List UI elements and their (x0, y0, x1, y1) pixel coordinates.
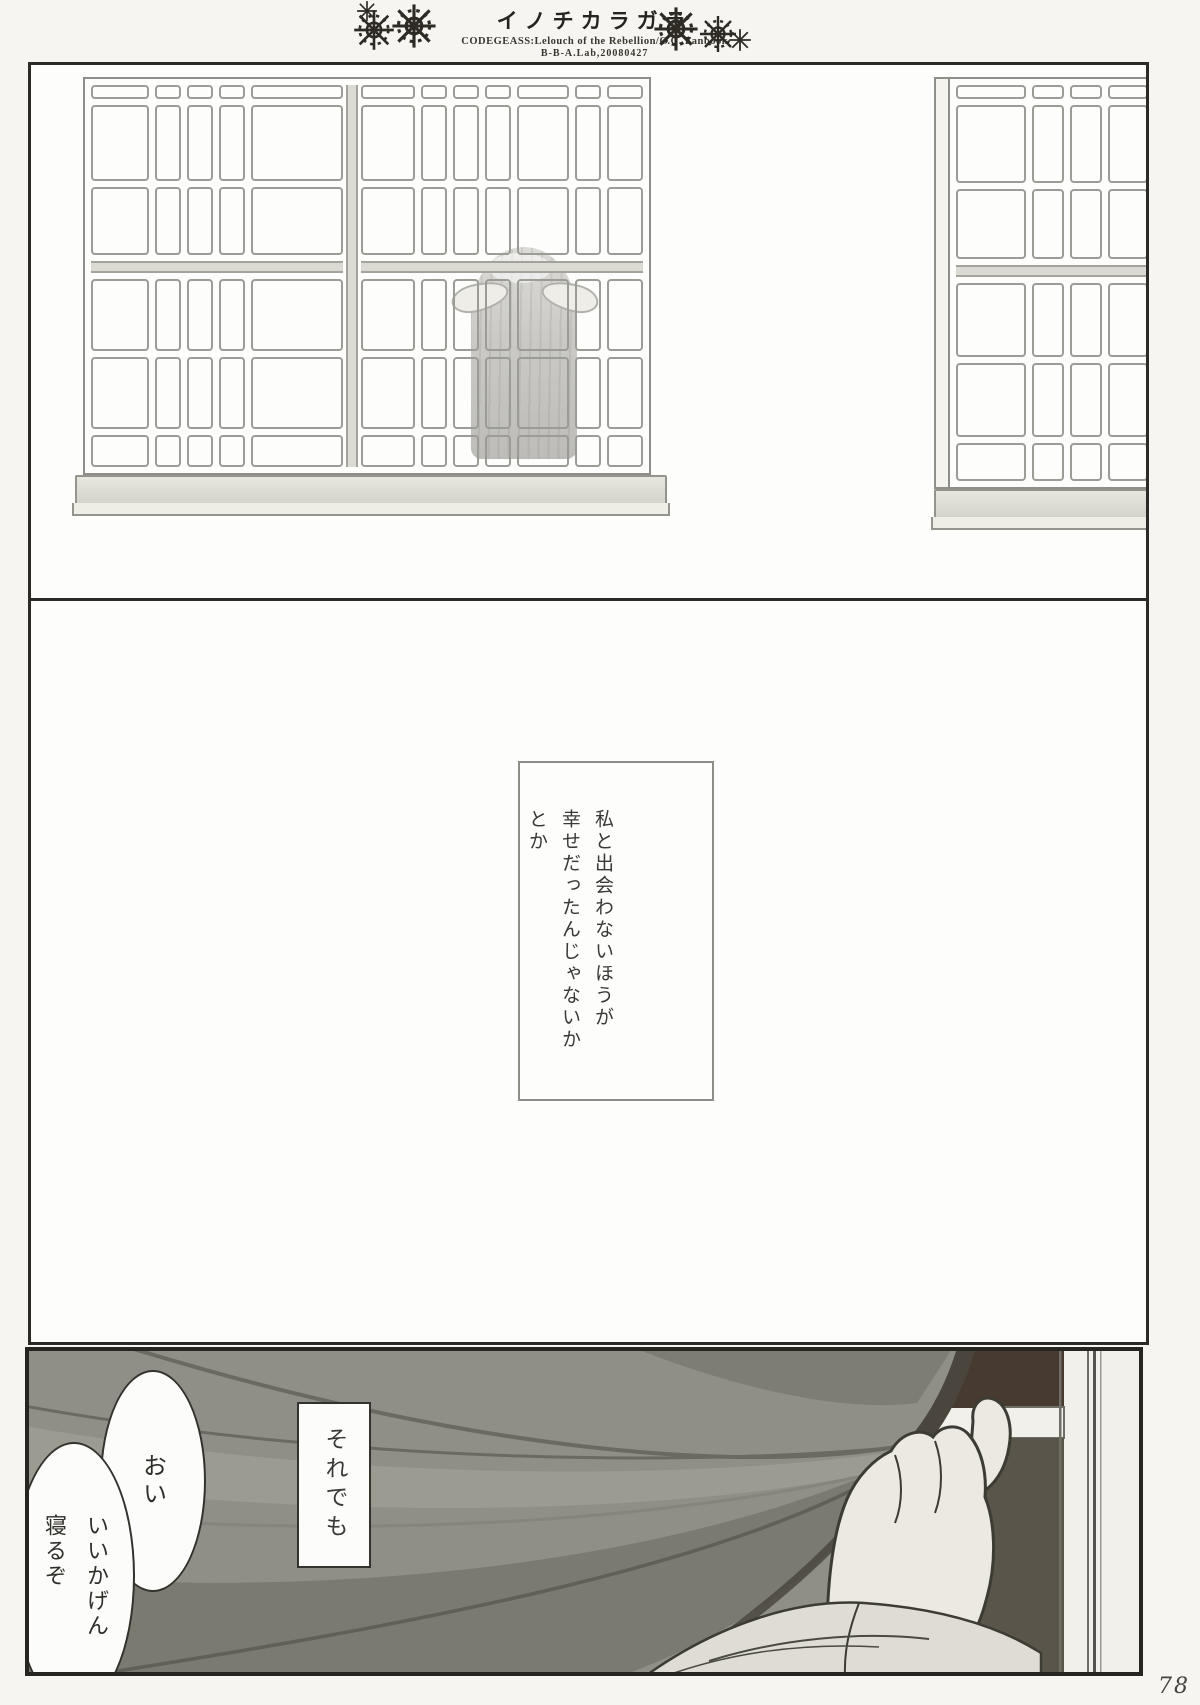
window-pane (956, 189, 1026, 259)
window-pane (1070, 443, 1102, 481)
window-pane (187, 105, 213, 181)
snowflake-ornament-icon (390, 2, 438, 50)
window-pane (575, 187, 601, 255)
window-pane (517, 187, 569, 255)
window-grid (956, 85, 1148, 481)
window-pane (1032, 189, 1064, 259)
speech-text: いいかげん 寝るぞ (32, 1514, 116, 1639)
window-pane (251, 357, 343, 429)
window-pane (361, 85, 415, 99)
window-pane (607, 357, 643, 429)
window-pane (187, 435, 213, 467)
window-pane (251, 435, 343, 467)
window-pane (187, 279, 213, 351)
panel-curtain-scene: それでも おい いいかげん 寝るぞ (25, 1347, 1143, 1676)
window-pane (485, 357, 511, 429)
manga-page: イノチカラガラ CODEGEASS:Lelouch of the Rebelli… (0, 0, 1200, 1705)
narration-text: それでも (317, 1427, 351, 1543)
window-pane (91, 435, 149, 467)
window-pane (187, 85, 213, 99)
window-pane (219, 279, 245, 351)
monologue-line: 幸せだったんじゃないか (553, 809, 586, 1099)
window-pane (421, 187, 447, 255)
window-pane (1108, 443, 1148, 481)
window-pane (607, 435, 643, 467)
window-rail (361, 261, 643, 273)
speech-text: おい (136, 1453, 171, 1509)
window-pane (361, 105, 415, 181)
window-pane (219, 187, 245, 255)
window-pane (421, 279, 447, 351)
window-pane (485, 279, 511, 351)
window-pane (485, 105, 511, 181)
window-pane (575, 435, 601, 467)
window-pane (956, 283, 1026, 357)
window-pane (453, 279, 479, 351)
window-pane (575, 105, 601, 181)
left-lattice-window (83, 77, 651, 475)
window-pane (219, 435, 245, 467)
window-pane (1108, 189, 1148, 259)
window-pane (155, 357, 181, 429)
monologue-line: とか (520, 809, 553, 1099)
window-pane (1108, 85, 1148, 99)
window-pane (485, 187, 511, 255)
page-header: イノチカラガラ CODEGEASS:Lelouch of the Rebelli… (0, 0, 1200, 60)
window-pane (187, 357, 213, 429)
window-pane (361, 279, 415, 351)
window-pane (956, 363, 1026, 437)
right-lattice-window (948, 77, 1149, 489)
window-pane (575, 279, 601, 351)
window-pane (517, 105, 569, 181)
window-pane (155, 435, 181, 467)
window-pane (575, 85, 601, 99)
window-pane (607, 187, 643, 255)
window-pane (1032, 363, 1064, 437)
window-pane (361, 435, 415, 467)
window-pane (956, 85, 1026, 99)
window-pane (1032, 443, 1064, 481)
window-sill (934, 489, 1149, 519)
window-pane (91, 187, 149, 255)
window-pane (1108, 363, 1148, 437)
window-grid-right-half (361, 85, 643, 467)
monologue-text: 私と出会わないほうが 幸せだったんじゃないか とか (520, 809, 619, 1099)
window-pane (219, 357, 245, 429)
window-mullion (346, 85, 358, 467)
window-grid-left-half (91, 85, 343, 467)
window-pane (91, 357, 149, 429)
speech-line: いいかげん (74, 1514, 116, 1639)
window-pane (1070, 283, 1102, 357)
window-pane (155, 105, 181, 181)
monologue-line: 私と出会わないほうが (586, 809, 619, 1099)
window-rail (956, 265, 1148, 277)
window-pane (453, 435, 479, 467)
window-pane (421, 435, 447, 467)
window-pane (517, 435, 569, 467)
window-pane (91, 279, 149, 351)
window-pane (485, 85, 511, 99)
window-pane (956, 443, 1026, 481)
window-pane (1070, 189, 1102, 259)
window-pane (155, 85, 181, 99)
window-sill (75, 475, 667, 505)
window-pane (1108, 105, 1148, 183)
window-pane (1032, 85, 1064, 99)
window-pane (956, 105, 1026, 183)
window-pane (155, 187, 181, 255)
snowflake-ornament-icon (728, 28, 752, 52)
window-pane (1070, 363, 1102, 437)
window-pane (517, 85, 569, 99)
window-pane (219, 105, 245, 181)
window-pane (251, 279, 343, 351)
window-pane (361, 357, 415, 429)
narration-box: それでも (297, 1402, 371, 1568)
window-pane (517, 279, 569, 351)
window-pane (485, 435, 511, 467)
window-pane (91, 85, 149, 99)
window-pane (421, 105, 447, 181)
window-pane (453, 357, 479, 429)
window-pane (607, 85, 643, 99)
window-pane (91, 105, 149, 181)
window-pane (251, 105, 343, 181)
window-pane (453, 187, 479, 255)
snowflake-ornament-icon (652, 5, 700, 53)
window-pane (575, 357, 601, 429)
window-pane (155, 279, 181, 351)
window-pane (421, 357, 447, 429)
speech-line: 寝るぞ (32, 1514, 74, 1639)
window-grid (91, 85, 643, 467)
window-pane (607, 279, 643, 351)
window-pane (453, 85, 479, 99)
window-pane (607, 105, 643, 181)
panel-window-and-monologue: 私と出会わないほうが 幸せだったんじゃないか とか (28, 62, 1149, 1345)
window-pane (517, 357, 569, 429)
monologue-box: 私と出会わないほうが 幸せだったんじゃないか とか (518, 761, 714, 1101)
window-pane (1070, 105, 1102, 183)
window-pane (187, 187, 213, 255)
window-pane (251, 85, 343, 99)
window-pane (361, 187, 415, 255)
window-pane (1070, 85, 1102, 99)
page-number: 78 (1158, 1674, 1190, 1699)
window-rail (91, 261, 343, 273)
window-pane (421, 85, 447, 99)
window-pane (1032, 105, 1064, 183)
window-pane (251, 187, 343, 255)
panel-divider (31, 598, 1146, 601)
window-pane (453, 105, 479, 181)
snowflake-ornament-icon (356, 0, 378, 22)
window-pane (1108, 283, 1148, 357)
window-pane (1032, 283, 1064, 357)
window-pane (219, 85, 245, 99)
